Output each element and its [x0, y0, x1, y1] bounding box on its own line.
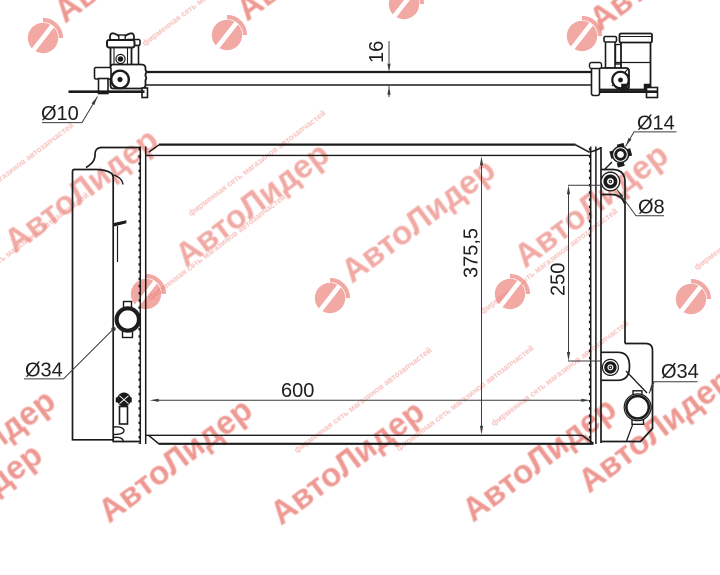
svg-text:250: 250 — [548, 263, 570, 296]
svg-text:Ø34: Ø34 — [25, 360, 63, 382]
svg-text:16: 16 — [366, 41, 388, 63]
svg-text:Ø34: Ø34 — [661, 361, 699, 383]
svg-text:Ø8: Ø8 — [638, 197, 665, 219]
svg-text:Ø14: Ø14 — [637, 113, 675, 135]
svg-text:375,5: 375,5 — [461, 228, 483, 278]
svg-text:Ø10: Ø10 — [41, 103, 79, 125]
svg-text:600: 600 — [281, 380, 314, 402]
